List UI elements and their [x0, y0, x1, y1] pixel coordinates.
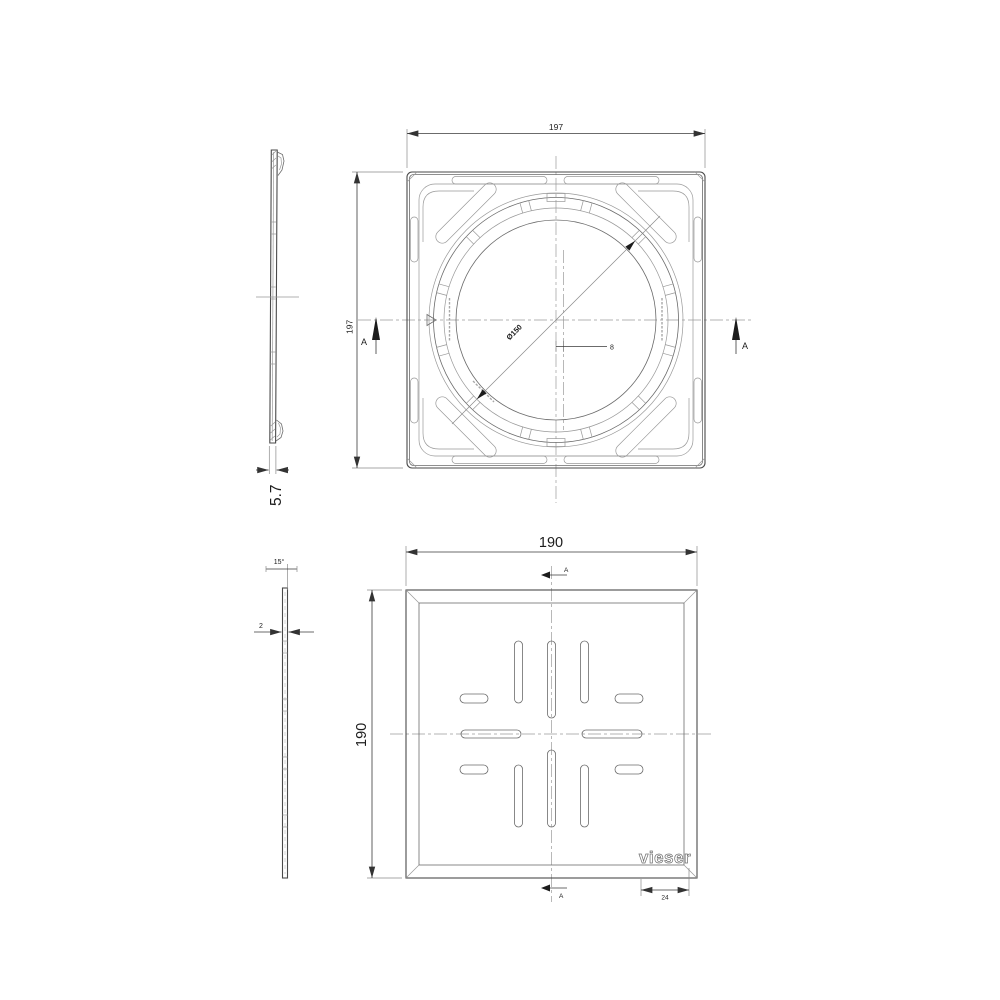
section-marks-grate: A A: [541, 567, 569, 900]
grate-side-view: 15° 2: [254, 558, 314, 878]
dim-grate-width: 190: [539, 535, 563, 551]
dim-grate-thickness: 2: [259, 623, 263, 630]
dim-edge-angle-group: 15°: [266, 558, 297, 590]
dim-logo-inset: 24: [661, 895, 669, 902]
frame-side-view: 5.7: [256, 150, 299, 506]
dim-logo-inset-group: 24: [641, 868, 689, 902]
dim-grate-thickness-group: 2: [254, 623, 314, 632]
dim-frame-thickness-group: 5.7: [256, 446, 289, 506]
dim-edge-angle: 15°: [274, 558, 285, 566]
brand-logo: vieser: [639, 848, 691, 867]
section-label-left: A: [361, 337, 367, 347]
frame-front-view: Ø150 8 A A 197 1: [345, 122, 755, 503]
dim-frame-width: 197: [549, 122, 563, 132]
dim-frame-height-group: 197: [345, 172, 404, 468]
technical-drawing: 5.7: [0, 0, 1000, 1000]
dim-frame-thickness: 5.7: [268, 484, 285, 506]
dim-frame-height: 197: [345, 320, 355, 334]
dim-center-offset: 8: [610, 345, 614, 352]
drawing-sheet: 5.7: [0, 0, 1000, 1000]
section-label-bottom: A: [559, 893, 564, 900]
grate-front-view: vieser A A 190 190 24: [354, 535, 712, 902]
dim-opening-diameter: Ø150: [505, 323, 524, 342]
section-label-top: A: [564, 567, 569, 574]
section-label-right: A: [742, 341, 748, 351]
dim-grate-height: 190: [354, 723, 370, 747]
dim-center-offset-group: 8: [556, 341, 614, 352]
